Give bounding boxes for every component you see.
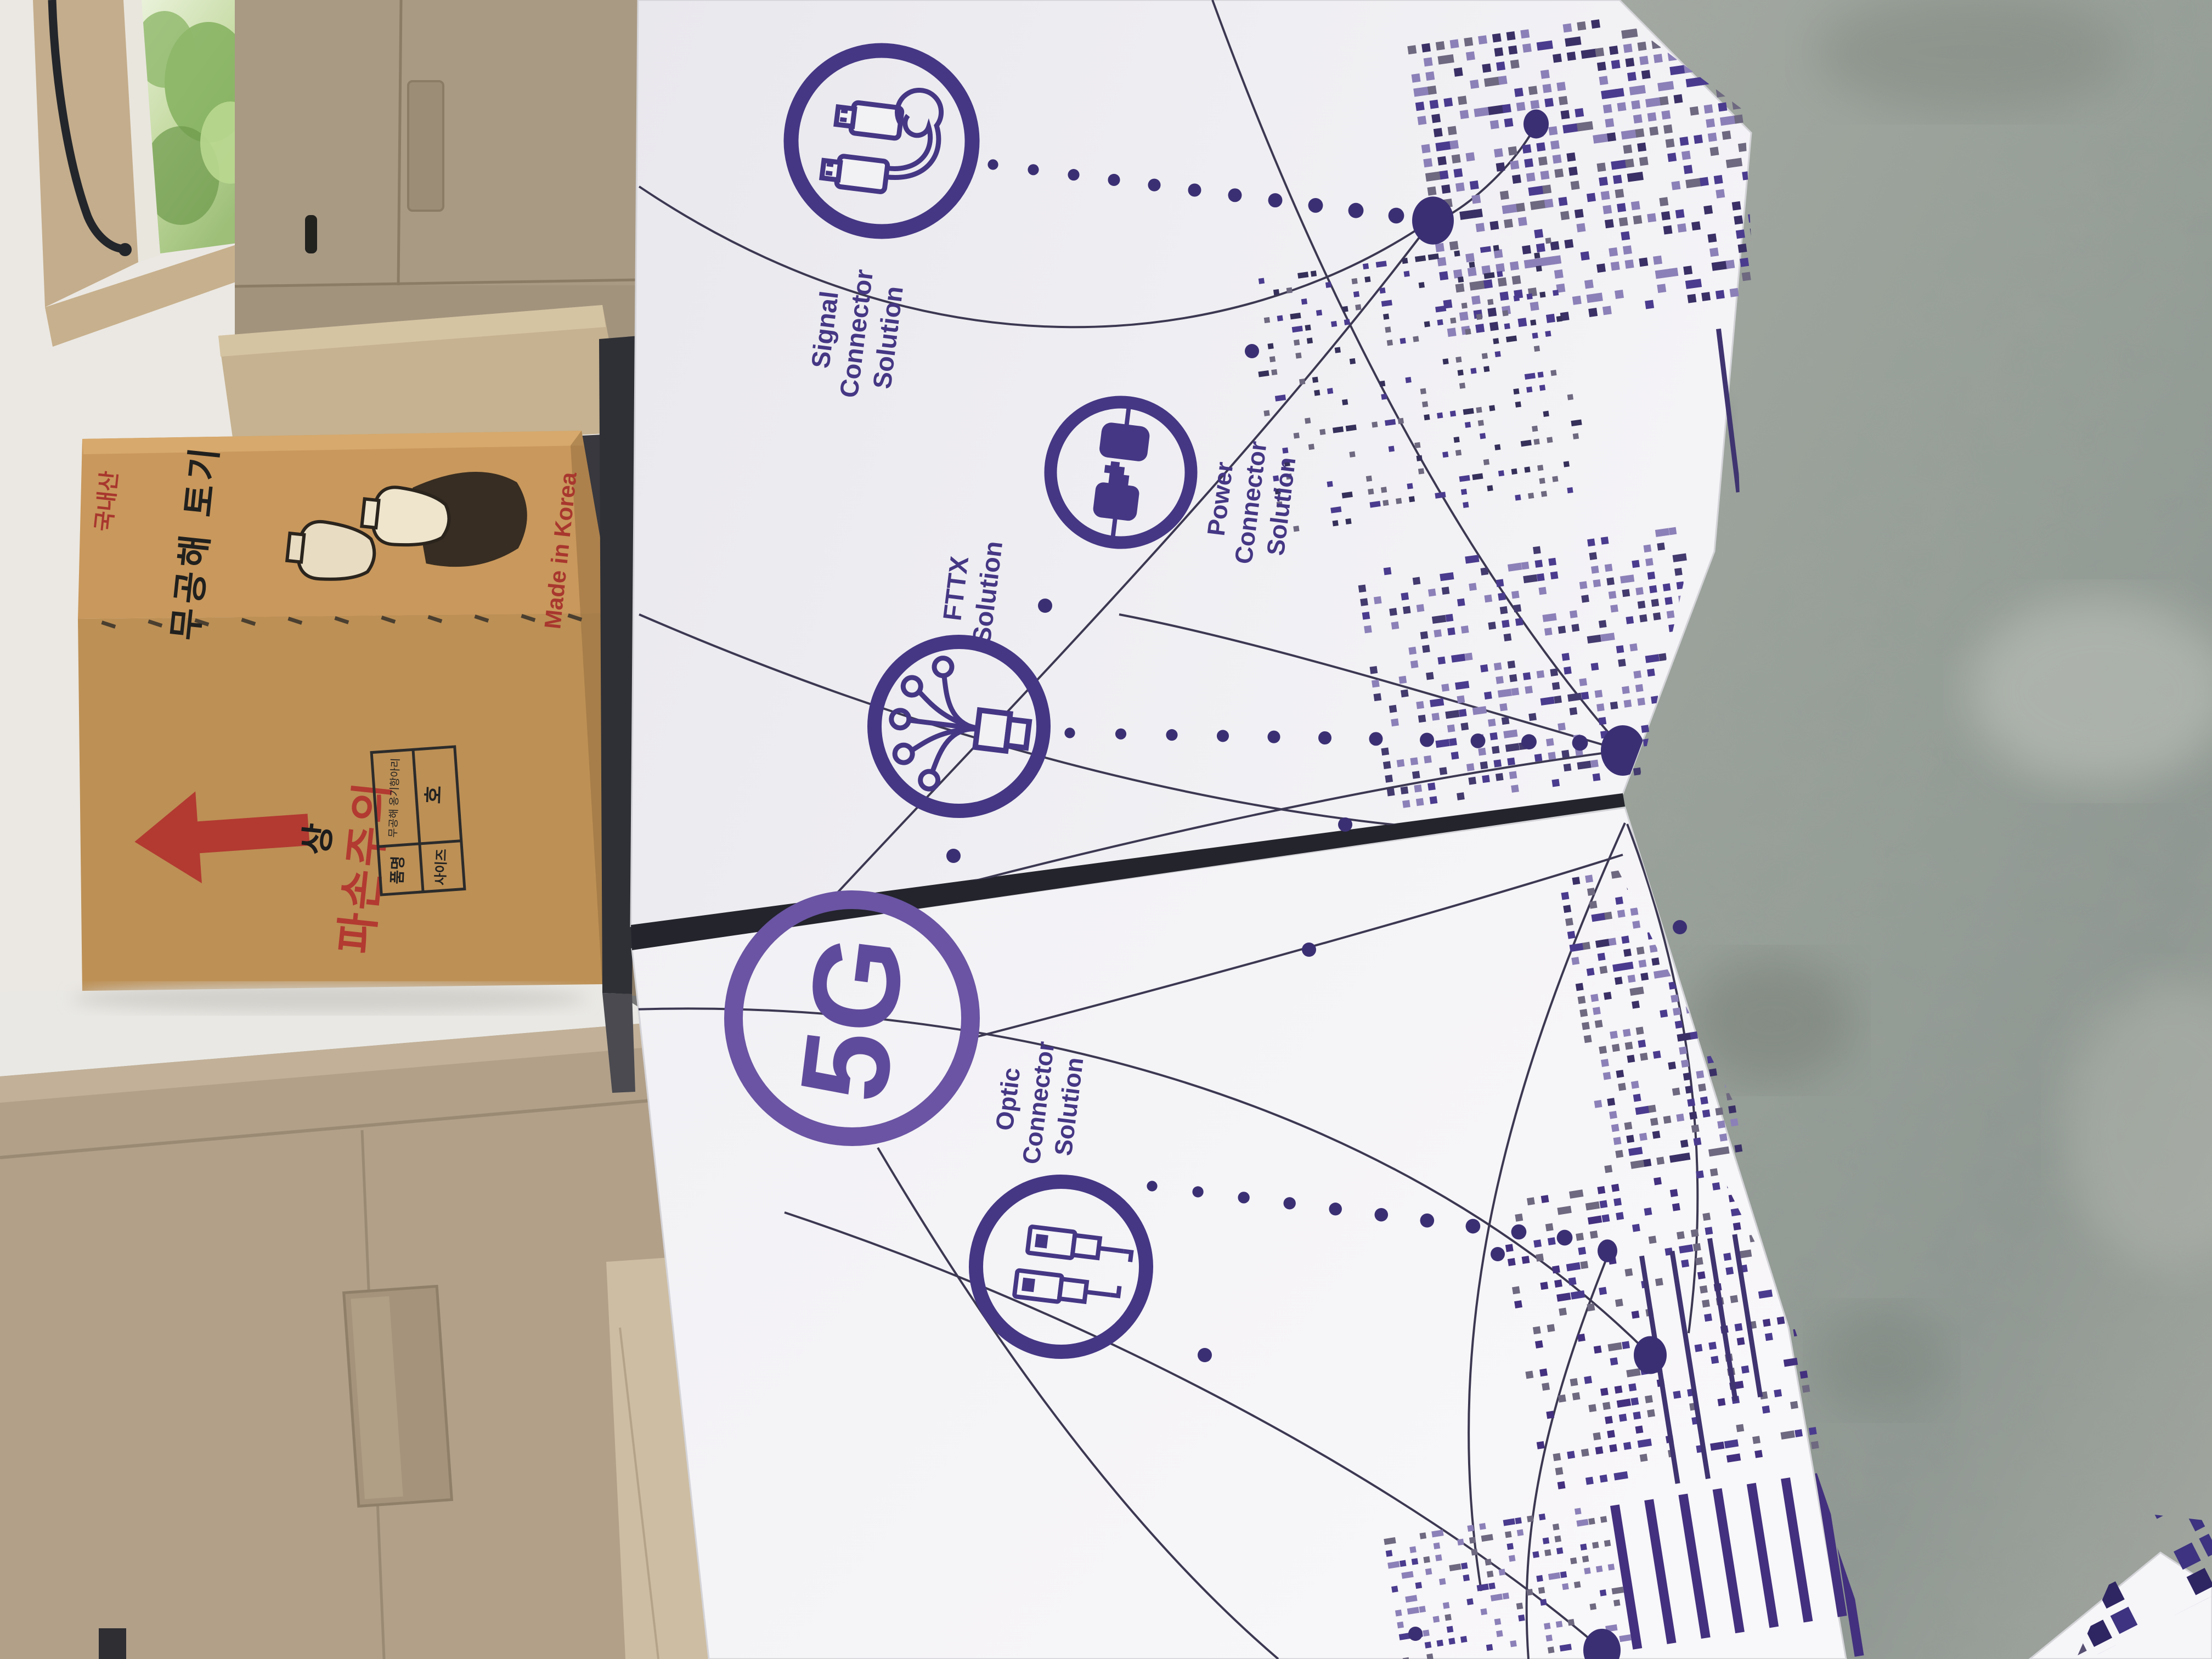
skyline-pixel [1546, 1410, 1554, 1419]
skyline-pixel [1418, 468, 1424, 474]
skyline-pixel [1358, 584, 1367, 592]
skyline-pixel [1706, 119, 1715, 128]
skyline-pixel [1765, 1333, 1773, 1341]
skyline-pixel [1619, 1414, 1627, 1422]
skyline-pixel [1385, 775, 1393, 783]
skyline-pixel [1514, 295, 1520, 301]
skyline-pixel [1607, 1430, 1615, 1438]
skyline-pixel [1470, 80, 1479, 89]
skyline-pixel [1558, 197, 1567, 206]
skyline-pixel [1269, 356, 1276, 362]
skyline-pixel [1637, 946, 1645, 955]
skyline-pixel [1442, 358, 1448, 364]
skyline-pixel [1809, 1427, 1817, 1435]
skyline-pixel [1621, 935, 1629, 944]
skyline-pixel [1558, 1395, 1566, 1403]
skyline-pixel [1681, 151, 1691, 160]
skyline-pixel [1613, 1137, 1622, 1145]
link-dot [1108, 174, 1120, 186]
skyline-pixel [1536, 1575, 1543, 1582]
skyline-pixel [1669, 527, 1677, 535]
skyline-pixel [1556, 316, 1562, 322]
skyline-pixel [1489, 321, 1499, 331]
skyline-pixel [1560, 211, 1570, 220]
skyline-pixel [1709, 146, 1719, 156]
skyline-pixel [1696, 1070, 1704, 1079]
skyline-pixel [1554, 696, 1562, 704]
skyline-pixel [1647, 1409, 1655, 1418]
link-dot [1166, 729, 1177, 741]
skyline-pixel [1308, 444, 1314, 450]
skyline-pixel [1327, 481, 1333, 487]
skyline-pixel [1537, 1441, 1545, 1449]
skyline-pixel [1487, 299, 1493, 305]
skyline-pixel [1385, 326, 1391, 332]
arc-dot [946, 849, 961, 863]
skyline-pixel [1608, 1564, 1615, 1571]
skyline-pixel [1593, 579, 1601, 588]
skyline-pixel [1540, 1599, 1547, 1606]
skyline-pixel [1663, 125, 1673, 134]
skyline-pixel [1507, 758, 1515, 766]
link-dot [1238, 1192, 1249, 1203]
skyline-pixel [1599, 966, 1607, 974]
link-dot [1283, 1197, 1295, 1209]
skyline-pixel [1508, 46, 1517, 55]
skyline-pixel [1366, 476, 1372, 482]
skyline-pixel [1417, 604, 1425, 612]
skyline-pixel [1604, 1165, 1612, 1173]
link-dot [1217, 730, 1229, 742]
skyline-pixel [1576, 1233, 1584, 1241]
skyline-pixel [1469, 583, 1477, 591]
skyline-pixel [1335, 347, 1341, 353]
skyline-pixel [1626, 1135, 1634, 1143]
skyline-pixel [1502, 620, 1510, 628]
skyline-pixel [1602, 306, 1612, 315]
skyline-pixel [1581, 251, 1590, 261]
cabinet-keyhole [305, 215, 317, 253]
skyline-pixel [1601, 537, 1609, 545]
skyline-pixel [1518, 1615, 1525, 1622]
skyline-pixel [1459, 312, 1469, 321]
skyline-pixel [1451, 752, 1459, 760]
skyline-pixel [1514, 1300, 1522, 1308]
skyline-pixel [1553, 154, 1562, 163]
skyline-pixel [1441, 684, 1449, 692]
skyline-pixel [1622, 589, 1630, 597]
skyline-pixel [1487, 1571, 1494, 1578]
skyline-pixel [1701, 292, 1711, 301]
link-dot [1318, 731, 1331, 744]
skyline-pixel [1738, 244, 1747, 253]
skyline-pixel [1572, 1392, 1581, 1401]
skyline-pixel [1575, 1508, 1582, 1515]
skyline-pixel [1381, 393, 1387, 399]
skyline-pixel [1577, 1334, 1585, 1342]
skyline-pixel [1635, 128, 1644, 138]
skyline-pixel [1550, 140, 1560, 150]
skyline-pixel [1649, 1235, 1657, 1244]
skyline-pixel [1454, 67, 1463, 77]
skyline-pixel [1738, 143, 1747, 152]
g5-text: 5G [774, 928, 931, 1109]
skyline-pixel [1617, 203, 1626, 212]
skyline-pixel [1453, 168, 1463, 178]
skyline-pixel [1542, 185, 1551, 194]
skyline-pixel [1512, 275, 1521, 285]
skyline-pixel [1391, 622, 1400, 630]
skyline-pixel [1704, 104, 1713, 114]
skyline-pixel [1610, 1031, 1618, 1039]
skyline-pixel [1457, 792, 1465, 800]
link-dot [1308, 198, 1323, 213]
skyline-pixel [1694, 134, 1703, 144]
skyline-pixel [1399, 676, 1407, 684]
skyline-pixel [1606, 577, 1615, 585]
skyline-pixel [1401, 592, 1409, 601]
skyline-pixel [1615, 977, 1623, 985]
box-up-text: 상 [297, 822, 338, 857]
skyline-pixel [1538, 156, 1548, 166]
skyline-pixel [1587, 193, 1596, 202]
skyline-pixel [1421, 144, 1431, 154]
skyline-pixel [1661, 110, 1671, 120]
skyline-pixel [1609, 247, 1618, 257]
skyline-pixel [1526, 294, 1532, 300]
skyline-pixel [1413, 577, 1421, 585]
skyline-pixel [1734, 1144, 1742, 1153]
skyline-pixel [1452, 154, 1461, 163]
arc-dot [1338, 817, 1352, 832]
skyline-pixel [1368, 489, 1374, 495]
skyline-pixel [1566, 153, 1576, 162]
skyline-pixel [1425, 1641, 1432, 1649]
skyline-pixel [1716, 290, 1725, 299]
skyline-pixel [1387, 340, 1393, 346]
skyline-pixel [1525, 1370, 1533, 1379]
skyline-pixel [1447, 628, 1455, 636]
skyline-pixel [1658, 653, 1667, 661]
skyline-pixel [1712, 1182, 1720, 1190]
skyline-pixel [1553, 1523, 1560, 1531]
link-dot [1348, 203, 1364, 218]
skyline-pixel [1615, 896, 1623, 905]
skyline-pixel [1548, 1646, 1555, 1654]
skyline-pixel [1432, 713, 1440, 721]
skyline-pixel [1469, 1537, 1476, 1544]
skyline-pixel [1434, 1542, 1441, 1549]
skyline-pixel [1668, 1062, 1676, 1070]
skyline-pixel [1461, 1562, 1468, 1570]
skyline-pixel [1723, 1252, 1731, 1261]
skyline-pixel [1494, 47, 1503, 57]
skyline-pixel [1537, 465, 1543, 471]
skyline-pixel [1741, 1365, 1750, 1374]
skyline-pixel [1575, 108, 1584, 117]
skyline-pixel [1624, 699, 1632, 708]
skyline-pixel [1578, 1247, 1586, 1255]
skyline-pixel [1532, 1551, 1539, 1558]
skyline-pixel [1587, 539, 1595, 547]
skyline-pixel [1327, 388, 1333, 394]
skyline-pixel [1722, 1147, 1730, 1155]
skyline-pixel [1470, 368, 1476, 374]
skyline-pixel [1677, 223, 1686, 233]
skyline-pixel [1418, 715, 1426, 723]
skyline-pixel [1443, 1602, 1450, 1609]
skyline-pixel [1528, 713, 1537, 721]
skyline-pixel [1556, 1621, 1563, 1628]
skyline-pixel [1708, 133, 1717, 142]
skyline-pixel [1577, 21, 1586, 31]
skyline-pixel [1702, 1300, 1710, 1308]
skyline-pixel [1504, 118, 1514, 127]
concrete-stain [1816, 1308, 1948, 1413]
skyline-pixel [1774, 1389, 1782, 1397]
skyline-pixel [1604, 992, 1612, 1000]
skyline-pixel [1596, 263, 1606, 273]
skyline-pixel [1479, 1523, 1486, 1530]
skyline-pixel [1615, 290, 1624, 299]
box-shadow [71, 984, 587, 1013]
skyline-pixel [1609, 46, 1618, 55]
skyline-pixel [1534, 229, 1543, 238]
skyline-pixel [1273, 289, 1279, 295]
skyline-pixel [1647, 112, 1657, 122]
skyline-pixel [1672, 1087, 1680, 1096]
skyline-pixel [1442, 452, 1448, 458]
table-size-label: 사이즈 [433, 849, 449, 885]
skyline-pixel [1652, 1131, 1661, 1139]
skyline-pixel [1431, 114, 1441, 123]
skyline-pixel [1632, 560, 1640, 568]
network-node [1412, 196, 1454, 244]
plug-right [1098, 421, 1150, 462]
skyline-pixel [1550, 241, 1560, 251]
skyline-pixel [1455, 183, 1465, 192]
skyline-pixel [1550, 668, 1558, 676]
skyline-pixel [1374, 693, 1382, 702]
slab-small-label [99, 1628, 126, 1659]
skyline-pixel [1584, 1376, 1592, 1384]
skyline-pixel [1314, 390, 1320, 396]
skyline-pixel [1625, 1042, 1633, 1050]
skyline-pixel [1516, 1602, 1523, 1610]
window-frame [33, 0, 138, 307]
link-dot [1028, 164, 1039, 175]
skyline-pixel [1509, 1555, 1516, 1562]
skyline-pixel [1594, 1345, 1602, 1353]
skyline-pixel [1673, 94, 1683, 104]
skyline-pixel [1522, 144, 1532, 154]
skyline-pixel [1508, 1258, 1516, 1266]
skyline-pixel [1601, 191, 1610, 200]
skyline-pixel [1508, 661, 1516, 669]
skyline-pixel [1603, 1072, 1611, 1080]
skyline-pixel [1544, 628, 1553, 636]
skyline-pixel [1430, 796, 1438, 804]
skyline-pixel [1483, 366, 1489, 372]
skyline-pixel [1736, 229, 1745, 239]
skyline-pixel [1459, 709, 1467, 717]
skyline-pixel [1596, 703, 1605, 712]
skyline-pixel [1709, 1068, 1717, 1076]
skyline-pixel [1718, 1398, 1726, 1406]
skyline-pixel [1594, 1100, 1602, 1108]
skyline-pixel [1381, 748, 1389, 756]
skyline-pixel [1499, 291, 1509, 301]
skyline-pixel [1667, 611, 1675, 619]
skyline-pixel [1476, 314, 1482, 320]
skyline-pixel [1478, 748, 1486, 756]
skyline-pixel [1506, 31, 1516, 41]
skyline-pixel [1522, 1256, 1530, 1264]
skyline-pixel [1552, 255, 1561, 264]
skyline-pixel [1466, 52, 1475, 61]
skyline-pixel [1510, 59, 1520, 69]
skyline-pixel [1400, 338, 1406, 344]
skyline-pixel [1516, 203, 1525, 212]
skyline-pixel [1730, 1295, 1738, 1303]
skyline-pixel [1383, 314, 1389, 320]
arc-dot [1245, 344, 1259, 358]
skyline-pixel [1609, 1444, 1617, 1452]
skyline-pixel [1625, 58, 1634, 67]
skyline-pixel [1607, 1098, 1615, 1106]
skyline-pixel [1685, 1086, 1694, 1094]
skyline-pixel [1570, 1558, 1577, 1565]
skyline-pixel [1622, 686, 1630, 694]
skyline-pixel [1465, 422, 1471, 428]
skyline-pixel [1647, 572, 1656, 580]
skyline-pixel [1609, 1111, 1617, 1119]
skyline-pixel [1457, 1539, 1464, 1546]
skyline-pixel [1541, 1195, 1549, 1203]
link-dot [1115, 729, 1126, 740]
skyline-pixel [1623, 949, 1632, 957]
skyline-pixel [1567, 487, 1573, 493]
skyline-pixel [1563, 23, 1572, 32]
skyline-pixel [1442, 586, 1450, 595]
skyline-pixel [1653, 1051, 1661, 1059]
cabinet-recessed-handle [408, 81, 443, 211]
skyline-pixel [1564, 764, 1572, 772]
skyline-pixel [1543, 411, 1549, 417]
skyline-pixel [1604, 912, 1612, 920]
skyline-pixel [1466, 763, 1475, 771]
skyline-pixel [1545, 1635, 1553, 1642]
skyline-pixel [1602, 1402, 1611, 1410]
skyline-pixel [1476, 407, 1482, 413]
skyline-pixel [1416, 798, 1424, 806]
skyline-pixel [1499, 703, 1508, 712]
skyline-pixel [1383, 761, 1391, 769]
skyline-pixel [1423, 158, 1432, 167]
link-dot [1572, 735, 1588, 751]
skyline-pixel [1427, 782, 1436, 791]
skyline-pixel [1598, 953, 1606, 961]
skyline-pixel [1645, 1395, 1653, 1403]
skyline-pixel [1696, 1170, 1704, 1178]
skyline-pixel [1599, 620, 1607, 628]
skyline-pixel [1526, 1589, 1533, 1596]
skyline-pixel [1600, 1589, 1607, 1596]
skyline-pixel [1595, 1446, 1604, 1454]
skyline-pixel [1625, 259, 1634, 269]
skyline-pixel [1416, 701, 1424, 709]
skyline-pixel [1650, 1118, 1658, 1126]
skyline-pixel [1603, 104, 1612, 114]
skyline-pixel [1541, 171, 1550, 180]
skyline-pixel [1536, 243, 1545, 252]
skyline-pixel [1537, 670, 1545, 679]
skyline-pixel [1587, 968, 1595, 976]
skyline-pixel [1718, 103, 1727, 112]
skyline-pixel [1389, 446, 1395, 452]
skyline-pixel [1550, 571, 1559, 579]
skyline-pixel [1795, 1429, 1803, 1437]
arc-dot [1038, 599, 1052, 613]
skyline-pixel [1636, 1026, 1644, 1035]
skyline-pixel [1301, 298, 1307, 304]
skyline-pixel [1488, 622, 1496, 630]
skyline-pixel [1397, 1622, 1404, 1629]
skyline-pixel [1664, 597, 1673, 605]
skyline-pixel [1562, 653, 1570, 661]
skyline-pixel [1496, 61, 1505, 71]
skyline-pixel [1423, 1629, 1430, 1637]
skyline-pixel [1333, 520, 1339, 526]
skyline-pixel [1639, 960, 1647, 968]
skyline-pixel [1635, 587, 1644, 595]
skyline-pixel [1534, 754, 1543, 762]
skyline-pixel [1402, 800, 1410, 808]
skyline-pixel [1446, 614, 1454, 622]
skyline-pixel [1474, 208, 1483, 218]
skyline-pixel [1465, 329, 1471, 335]
skyline-pixel [1486, 1644, 1493, 1651]
skyline-pixel [1589, 552, 1598, 560]
skyline-pixel [1514, 88, 1523, 97]
skyline-pixel [1654, 54, 1663, 63]
skyline-pixel [1454, 437, 1460, 443]
skyline-pixel [1469, 262, 1475, 268]
skyline-pixel [1490, 120, 1499, 129]
skyline-pixel [1463, 502, 1469, 508]
skyline-pixel [1672, 1203, 1680, 1211]
link-dot [1420, 1214, 1435, 1228]
skyline-pixel [1437, 657, 1446, 665]
skyline-pixel [1448, 1638, 1455, 1645]
skyline-pixel [1505, 1531, 1512, 1538]
skyline-pixel [1621, 231, 1630, 240]
skyline-pixel [1666, 139, 1675, 148]
skyline-pixel [1693, 1243, 1701, 1251]
skyline-pixel [1471, 195, 1481, 204]
skyline-pixel [1702, 1212, 1711, 1221]
skyline-pixel [1448, 126, 1457, 136]
skyline-pixel [1379, 381, 1385, 387]
skyline-pixel [1719, 1133, 1728, 1142]
concrete-stain [1690, 957, 1854, 1084]
skyline-pixel [1530, 100, 1539, 109]
skyline-pixel [1515, 494, 1521, 500]
skyline-pixel [1638, 42, 1647, 51]
skyline-pixel [1695, 1344, 1703, 1352]
skyline-pixel [1601, 1059, 1609, 1067]
skyline-pixel [1754, 1450, 1763, 1458]
